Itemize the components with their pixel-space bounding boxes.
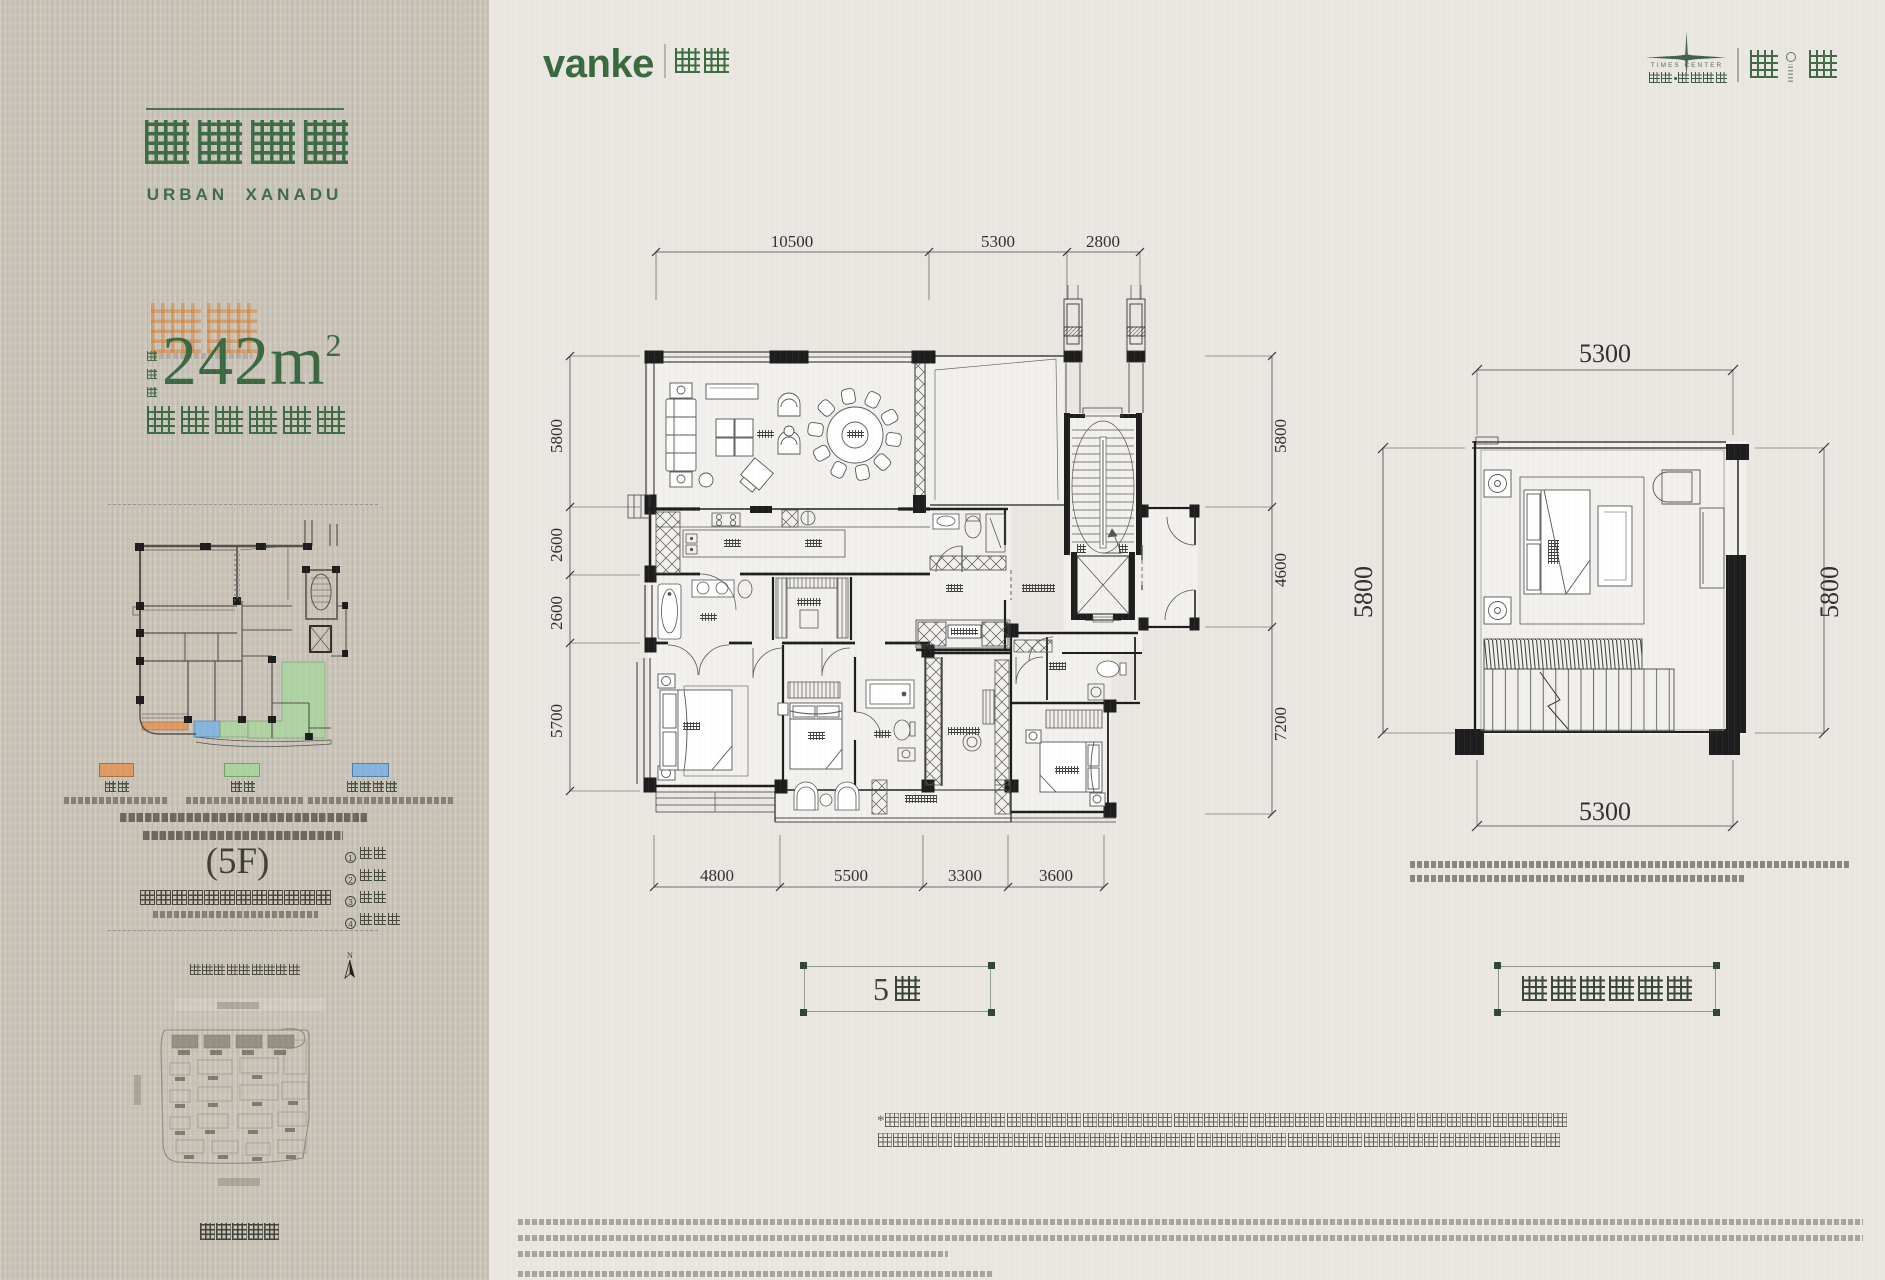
svg-text:5300: 5300 xyxy=(1579,339,1631,368)
svg-text:2800: 2800 xyxy=(1086,232,1120,251)
svg-text:5500: 5500 xyxy=(834,866,868,885)
svg-text:4600: 4600 xyxy=(1271,553,1290,587)
svg-text:5800: 5800 xyxy=(1271,419,1290,453)
svg-text:5300: 5300 xyxy=(1579,797,1631,826)
svg-text:2600: 2600 xyxy=(547,528,566,562)
svg-text:10500: 10500 xyxy=(771,232,814,251)
svg-text:5300: 5300 xyxy=(981,232,1015,251)
svg-text:5700: 5700 xyxy=(547,704,566,738)
svg-text:N: N xyxy=(347,951,353,960)
svg-text:7200: 7200 xyxy=(1271,707,1290,741)
svg-text:5800: 5800 xyxy=(1815,566,1844,618)
svg-text:4800: 4800 xyxy=(700,866,734,885)
svg-text:5800: 5800 xyxy=(547,419,566,453)
svg-text:3600: 3600 xyxy=(1039,866,1073,885)
svg-text:3300: 3300 xyxy=(948,866,982,885)
svg-text:2600: 2600 xyxy=(547,596,566,630)
svg-text:5800: 5800 xyxy=(1349,566,1378,618)
